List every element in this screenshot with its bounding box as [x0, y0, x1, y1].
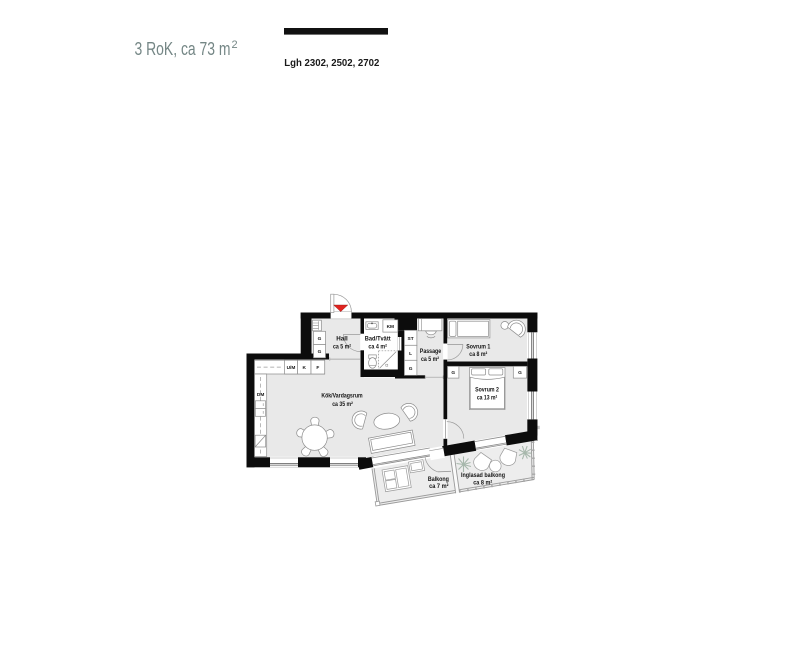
svg-text:G: G: [318, 336, 322, 342]
svg-text:Kök/Vardagsrum: Kök/Vardagsrum: [321, 393, 362, 399]
svg-text:F: F: [316, 365, 319, 371]
svg-text:Sovrum 2: Sovrum 2: [475, 387, 499, 393]
svg-text:Hall: Hall: [336, 337, 348, 343]
svg-text:K: K: [302, 365, 306, 371]
svg-text:ca 5 m²: ca 5 m²: [333, 344, 351, 351]
svg-text:U/M: U/M: [287, 365, 296, 371]
svg-text:Inglasad balkong: Inglasad balkong: [461, 473, 505, 479]
svg-text:Passage: Passage: [420, 349, 442, 355]
svg-text:G: G: [518, 370, 522, 376]
svg-text:ca 5 m²: ca 5 m²: [421, 356, 439, 363]
svg-text:Balkong: Balkong: [428, 477, 449, 483]
svg-text:DM: DM: [257, 392, 264, 398]
svg-text:ca 35 m²: ca 35 m²: [332, 401, 353, 408]
svg-text:Lgh 2302, 2502, 2702: Lgh 2302, 2502, 2702: [284, 58, 379, 69]
svg-text:G: G: [451, 370, 455, 376]
svg-text:G: G: [318, 349, 322, 355]
svg-text:L: L: [409, 351, 412, 357]
svg-text:2: 2: [232, 39, 238, 51]
svg-text:ST: ST: [408, 336, 414, 342]
svg-text:3 RoK, ca 73 m: 3 RoK, ca 73 m: [135, 38, 231, 59]
svg-text:Bad/Tvätt: Bad/Tvätt: [365, 337, 391, 343]
svg-text:ca 8 m²: ca 8 m²: [469, 351, 487, 358]
svg-text:ca 4 m²: ca 4 m²: [368, 343, 387, 350]
svg-text:KM: KM: [387, 324, 394, 330]
svg-text:ca 7 m²: ca 7 m²: [429, 483, 448, 490]
svg-text:Sovrum 1: Sovrum 1: [466, 344, 491, 350]
svg-text:ca 8 m²: ca 8 m²: [473, 480, 492, 487]
svg-text:G: G: [409, 366, 413, 372]
svg-text:ca 13 m²: ca 13 m²: [477, 395, 497, 402]
